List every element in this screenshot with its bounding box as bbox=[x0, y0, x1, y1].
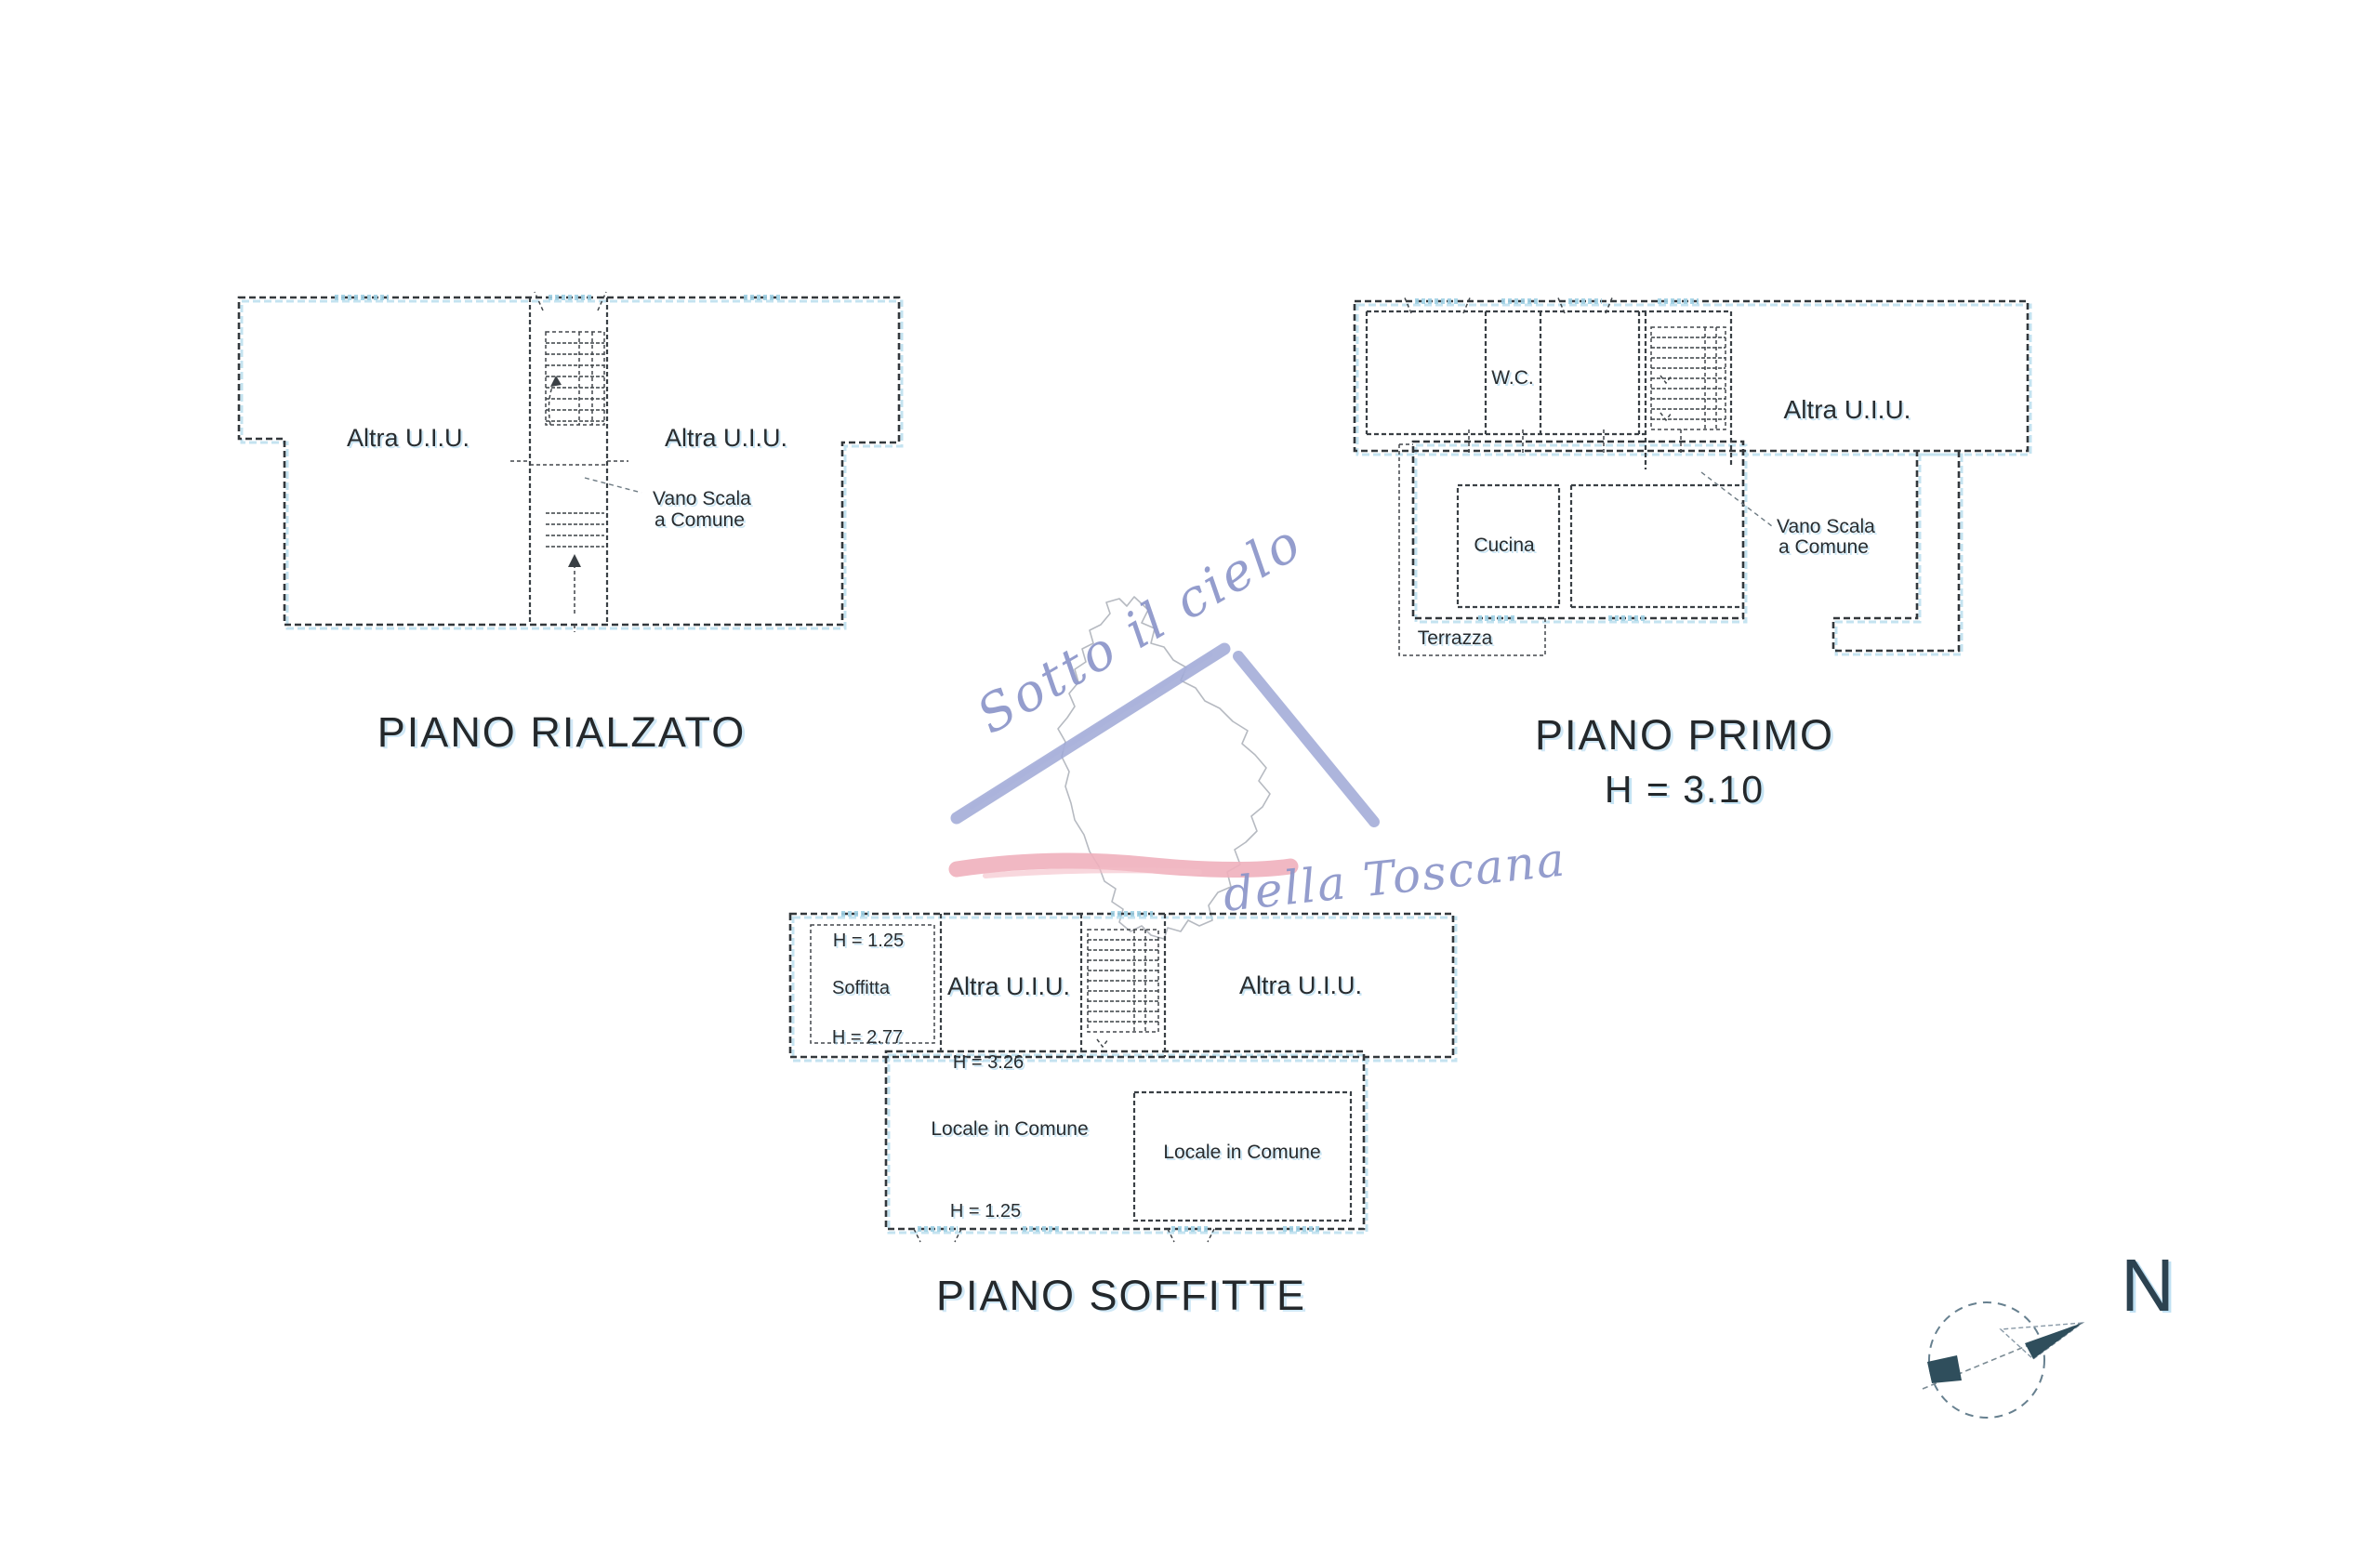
plan1-stair-shaft-walls bbox=[530, 297, 607, 625]
plan2-stairwell-label-line1: Vano Scala bbox=[1777, 516, 1875, 537]
plan2-top-band-wall bbox=[1355, 301, 2028, 451]
plan2-unit-label: Altra U.I.U. bbox=[1784, 395, 1911, 424]
plan3-common-left-label: Locale in Comune bbox=[931, 1118, 1088, 1140]
plan3-unit-left-label: Altra U.I.U. bbox=[947, 972, 1070, 1000]
plan2-kitchen-label: Cucina bbox=[1474, 535, 1535, 556]
plan1-stair-leader bbox=[585, 478, 641, 493]
compass-north-label: N bbox=[2121, 1244, 2175, 1327]
plan1-unit-left-label: Altra U.I.U. bbox=[347, 424, 469, 452]
roof-stroke-right bbox=[1238, 656, 1374, 822]
plan1-staircase bbox=[510, 332, 628, 632]
plan1-stairwell-label-line1: Vano Scala bbox=[653, 488, 751, 509]
plan1-title: PIANO RIALZATO bbox=[348, 708, 775, 757]
plan-soffitte: H = 1.25 Soffitta H = 2.77 Altra U.I.U. … bbox=[781, 902, 1469, 1244]
plan3-height-bottom-label: H = 1.25 bbox=[950, 1201, 1021, 1221]
plan2-staircase bbox=[1651, 327, 1725, 429]
plan3-height-mid-label: H = 2.77 bbox=[832, 1027, 903, 1048]
plan2-stairwell-label-line2: a Comune bbox=[1778, 536, 1869, 558]
compass: N bbox=[1897, 1236, 2203, 1478]
plan3-staircase bbox=[1088, 930, 1158, 1047]
plan-rialzato: Altra U.I.U. Altra U.I.U. Vano Scala a C… bbox=[223, 286, 911, 632]
plan3-outline-fringe bbox=[793, 918, 1456, 1233]
plan3-title: PIANO SOFFITTE bbox=[907, 1272, 1335, 1320]
plan2-terrace-label: Terrazza bbox=[1418, 627, 1493, 649]
plan2-middle-block-wall bbox=[1413, 442, 1743, 618]
plan2-title-block: PIANO PRIMO H = 3.10 bbox=[1480, 711, 1889, 812]
plan3-common-right-label: Locale in Comune bbox=[1163, 1142, 1320, 1163]
plan2-height-note: H = 3.10 bbox=[1480, 768, 1889, 812]
plan3-attic-label: Soffitta bbox=[832, 978, 891, 998]
plan2-stair-leader bbox=[1701, 472, 1772, 526]
plan1-stairwell-label-line2: a Comune bbox=[654, 509, 745, 531]
plan2-title: PIANO PRIMO bbox=[1480, 711, 1889, 759]
floorplan-sheet: Sotto il cielo della Toscana bbox=[0, 0, 2380, 1545]
plan3-height-top-label: H = 1.25 bbox=[833, 931, 904, 951]
underline-stroke-texture bbox=[985, 870, 1199, 876]
plan3-unit-right-label: Altra U.I.U. bbox=[1239, 971, 1362, 999]
compass-needle-head bbox=[2025, 1323, 2082, 1359]
plan3-bottom-door-flares bbox=[914, 1229, 1214, 1242]
compass-needle-tail bbox=[1927, 1355, 1962, 1383]
plan3-height-326-label: H = 3.26 bbox=[953, 1052, 1024, 1073]
plan2-room-walls bbox=[1367, 311, 1743, 607]
plan2-wc-label: W.C. bbox=[1491, 367, 1534, 389]
plan1-unit-right-label: Altra U.I.U. bbox=[665, 424, 787, 452]
plan-primo: W.C. Altra U.I.U. Cucina Vano Scala a Co… bbox=[1339, 290, 2045, 669]
plan1-outer-wall bbox=[239, 297, 899, 625]
